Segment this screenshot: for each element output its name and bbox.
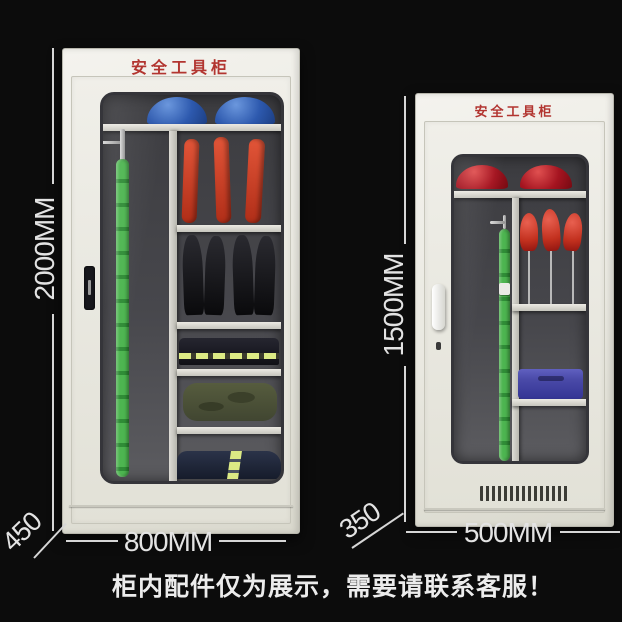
left-height-label: 2000MM	[29, 198, 61, 301]
right-width-dimension-line	[560, 531, 620, 533]
left-height-dimension-line	[52, 48, 54, 184]
left-cabinet-lock-slot	[88, 280, 91, 295]
right-cabinet-title: 安全工具柜	[416, 101, 613, 120]
cabinet-base-groove	[424, 508, 605, 510]
right-height-dimension-line	[404, 366, 406, 522]
left-width-label: 800MM	[124, 526, 212, 558]
right-cabinet-keyhole	[436, 342, 441, 350]
product-photo-stage: 安全工具柜	[0, 0, 622, 622]
left-width-dimension-line	[219, 540, 286, 542]
right-cabinet-glass-window	[451, 154, 589, 464]
right-width-label: 500MM	[464, 517, 552, 549]
left-cabinet: 安全工具柜	[62, 48, 300, 534]
ventilation-slots	[480, 486, 568, 501]
left-cabinet-lock	[84, 266, 95, 310]
right-height-dimension-line	[404, 96, 406, 244]
left-width-dimension-line	[66, 540, 118, 542]
right-cabinet-handle	[432, 284, 445, 330]
glass-reflection	[103, 95, 281, 481]
cabinet-base-groove	[69, 505, 293, 507]
left-cabinet-title: 安全工具柜	[63, 54, 299, 78]
right-height-label: 1500MM	[378, 254, 410, 357]
left-cabinet-glass-window	[100, 92, 284, 484]
right-width-dimension-line	[406, 531, 457, 533]
right-cabinet: 安全工具柜	[415, 93, 614, 527]
bottom-caption: 柜内配件仅为展示，需要请联系客服！	[112, 567, 554, 603]
left-height-dimension-line	[52, 314, 54, 531]
right-depth-label: 350	[334, 496, 386, 545]
glass-reflection	[454, 157, 586, 461]
